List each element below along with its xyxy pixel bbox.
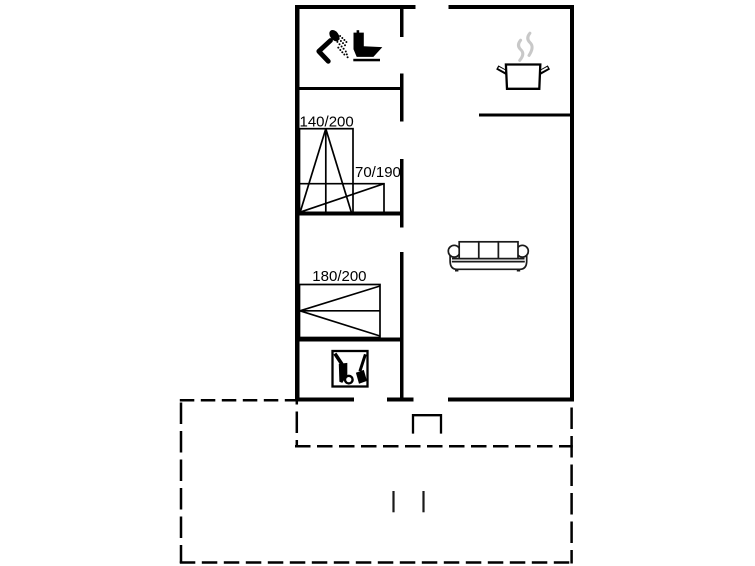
svg-text:70/190: 70/190 — [355, 164, 401, 181]
svg-text:180/200: 180/200 — [312, 268, 366, 285]
